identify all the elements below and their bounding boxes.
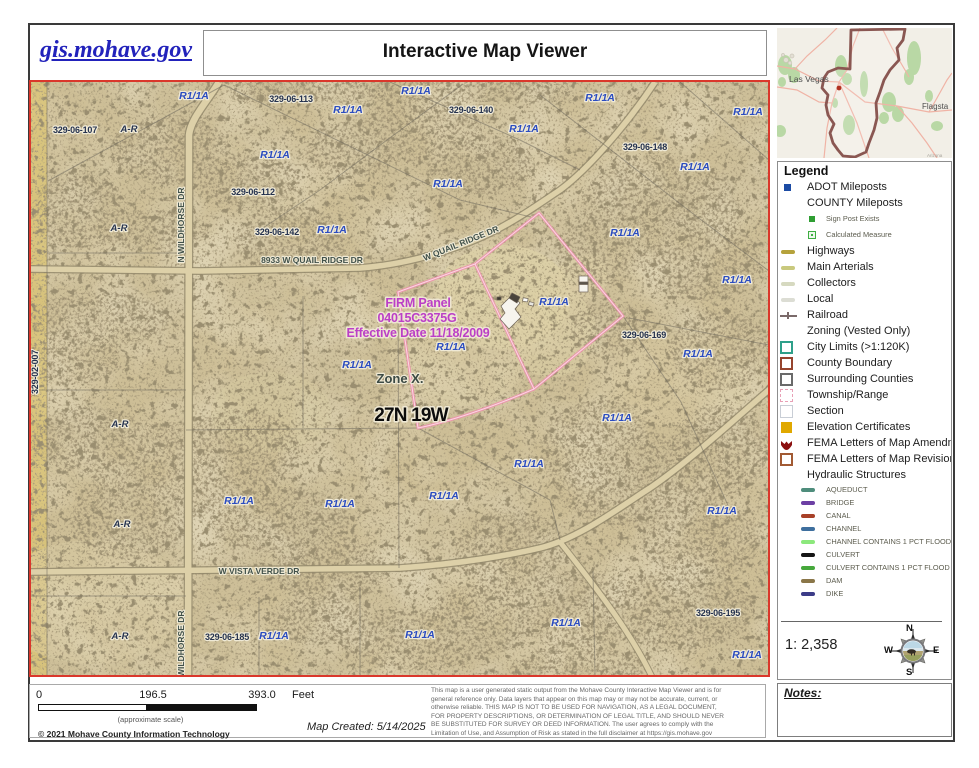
- svg-text:A-R: A-R: [111, 631, 129, 642]
- svg-text:R1/1A: R1/1A: [325, 498, 355, 510]
- svg-text:329-06-169: 329-06-169: [622, 330, 666, 340]
- svg-text:Flagsta: Flagsta: [922, 102, 949, 111]
- svg-text:R1/1A: R1/1A: [433, 178, 463, 190]
- svg-text:R1/1A: R1/1A: [436, 341, 466, 353]
- svg-text:Arizona: Arizona: [927, 153, 943, 158]
- svg-text:R1/1A: R1/1A: [260, 149, 290, 161]
- svg-text:04015C3375G: 04015C3375G: [377, 311, 456, 325]
- svg-text:R1/1A: R1/1A: [333, 104, 363, 116]
- svg-text:A-R: A-R: [110, 223, 128, 234]
- svg-text:R1/1A: R1/1A: [509, 123, 539, 135]
- svg-text:R1/1A: R1/1A: [610, 227, 640, 239]
- svg-text:R1/1A: R1/1A: [733, 106, 763, 118]
- svg-text:R1/1A: R1/1A: [539, 296, 569, 308]
- svg-text:R1/1A: R1/1A: [707, 505, 737, 517]
- svg-text:R1/1A: R1/1A: [585, 92, 615, 104]
- svg-text:R1/1A: R1/1A: [680, 161, 710, 173]
- svg-text:R1/1A: R1/1A: [602, 412, 632, 424]
- svg-text:Effective Date 11/18/2009: Effective Date 11/18/2009: [346, 326, 489, 340]
- svg-text:FIRM Panel: FIRM Panel: [385, 296, 450, 310]
- svg-text:329-06-140: 329-06-140: [449, 105, 493, 115]
- svg-text:R1/1A: R1/1A: [551, 617, 581, 629]
- svg-text:329-06-148: 329-06-148: [623, 142, 667, 152]
- svg-text:R1/1A: R1/1A: [342, 359, 372, 371]
- svg-text:N WILDHORSE DR: N WILDHORSE DR: [176, 610, 186, 675]
- svg-text:R1/1A: R1/1A: [683, 348, 713, 360]
- svg-text:329-06-185: 329-06-185: [205, 632, 249, 642]
- svg-text:329-06-112: 329-06-112: [231, 187, 275, 197]
- svg-text:Zone X.: Zone X.: [377, 371, 424, 386]
- svg-text:329-06-142: 329-06-142: [255, 227, 299, 237]
- svg-text:329-06-107: 329-06-107: [53, 125, 97, 135]
- svg-text:R1/1A: R1/1A: [722, 274, 752, 286]
- svg-text:R1/1A: R1/1A: [401, 85, 431, 97]
- svg-text:Las Vegas: Las Vegas: [789, 74, 829, 84]
- svg-text:R1/1A: R1/1A: [732, 649, 762, 661]
- svg-text:R1/1A: R1/1A: [429, 490, 459, 502]
- svg-text:329-06-113: 329-06-113: [269, 94, 313, 104]
- svg-text:R1/1A: R1/1A: [179, 90, 209, 102]
- svg-text:8933 W QUAIL RIDGE DR: 8933 W QUAIL RIDGE DR: [261, 255, 363, 265]
- svg-text:27N 19W: 27N 19W: [374, 405, 448, 426]
- svg-text:A-R: A-R: [111, 419, 129, 430]
- svg-text:R1/1A: R1/1A: [514, 458, 544, 470]
- svg-text:N WILDHORSE DR: N WILDHORSE DR: [176, 187, 186, 262]
- svg-text:329-02-007: 329-02-007: [31, 350, 40, 394]
- svg-text:A-R: A-R: [120, 124, 138, 135]
- svg-text:R1/1A: R1/1A: [317, 224, 347, 236]
- svg-text:W VISTA VERDE DR: W VISTA VERDE DR: [219, 566, 300, 576]
- svg-text:R1/1A: R1/1A: [224, 495, 254, 507]
- svg-text:A-R: A-R: [113, 519, 131, 530]
- svg-text:R1/1A: R1/1A: [405, 629, 435, 641]
- svg-text:329-06-195: 329-06-195: [696, 608, 740, 618]
- svg-text:R1/1A: R1/1A: [259, 630, 289, 642]
